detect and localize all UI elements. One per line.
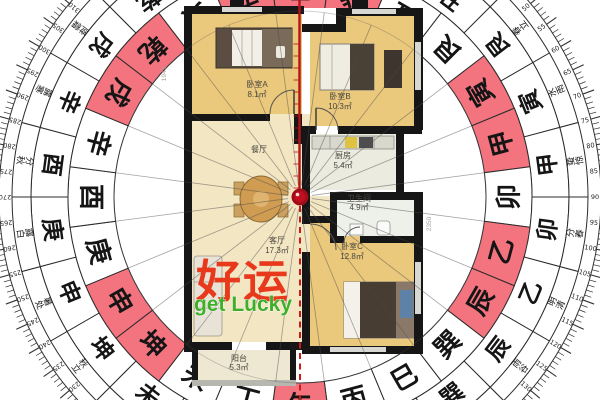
degree-tick	[44, 17, 54, 24]
degree-tick	[594, 260, 600, 261]
degree-tick	[550, 365, 556, 369]
degree-tick	[54, 12, 60, 16]
degree-tick	[12, 87, 19, 90]
degree-label: 60	[550, 44, 561, 55]
degree-label: 305	[51, 21, 66, 35]
dimension-label-right: 2350	[426, 216, 433, 231]
degree-tick	[28, 338, 34, 341]
dimension-label-left: 1943	[161, 66, 168, 81]
degree-tick	[45, 25, 51, 29]
degree-tick	[593, 265, 600, 267]
degree-tick	[555, 34, 561, 38]
degree-label: 65	[562, 67, 573, 78]
degree-tick	[16, 315, 22, 318]
degree-tick	[51, 374, 57, 378]
dining-table	[234, 176, 288, 222]
toilet	[377, 221, 390, 235]
degree-tick	[51, 16, 57, 20]
degree-tick	[585, 295, 592, 297]
degree-tick	[39, 357, 45, 361]
degree-tick	[57, 382, 63, 386]
solar-term-char: 露	[24, 228, 35, 238]
degree-tick	[9, 295, 16, 297]
degree-tick	[1, 270, 8, 272]
exterior-notch	[302, 8, 338, 24]
degree-tick	[36, 352, 42, 356]
center-point-highlight	[296, 193, 300, 197]
degree-tick	[1, 122, 8, 124]
degree-tick	[68, 394, 73, 399]
watermark: 好运 get Lucky	[194, 257, 292, 316]
degree-tick	[26, 57, 32, 60]
degree-tick	[4, 112, 11, 114]
solar-term-char: 蛰	[564, 156, 576, 166]
degree-tick	[19, 72, 25, 75]
middle-mountain-char: 庚	[38, 216, 67, 242]
degree-tick	[596, 143, 600, 145]
degree-tick	[28, 52, 34, 55]
degree-tick	[571, 62, 577, 65]
degree-tick	[588, 107, 595, 109]
degree-tick	[566, 338, 572, 341]
degree-tick	[0, 265, 7, 267]
degree-tick	[591, 275, 600, 278]
degree-tick	[36, 38, 42, 42]
degree-tick	[595, 138, 600, 139]
degree-tick	[57, 7, 63, 11]
degree-tick	[563, 48, 569, 51]
degree-tick	[14, 310, 20, 313]
degree-tick	[0, 116, 9, 119]
middle-mountain-char: 甲	[534, 151, 562, 177]
degree-tick	[589, 280, 596, 282]
degree-tick	[573, 65, 584, 70]
stove-icon	[345, 137, 357, 148]
degree-tick	[6, 300, 17, 304]
degree-tick	[581, 87, 588, 90]
degree-tick	[31, 48, 37, 51]
degree-tick	[44, 370, 54, 377]
degree-tick	[552, 361, 558, 365]
degree-tick	[16, 77, 22, 80]
degree-tick	[531, 0, 540, 4]
luopan-floorplan-image: 子子冬至癸癸小寒丑丑大寒艮艮立春寅寅雨水甲甲惊蛰卯卯春分乙乙清明辰辰谷雨巽巽立夏…	[0, 0, 600, 400]
degree-tick	[573, 324, 584, 329]
degree-tick	[23, 329, 29, 332]
degree-tick	[592, 122, 599, 124]
room-label-dining: 餐厅	[251, 145, 267, 154]
degree-tick	[23, 62, 29, 65]
degree-tick	[566, 52, 572, 55]
degree-tick	[527, 394, 532, 399]
room-area-living: 17.3㎡	[265, 246, 289, 255]
degree-tick	[0, 133, 6, 134]
degree-tick	[575, 319, 581, 322]
degree-label: 70	[572, 91, 583, 101]
degree-tick	[537, 382, 543, 386]
scene: 子子冬至癸癸小寒丑丑大寒艮艮立春寅寅雨水甲甲惊蛰卯卯春分乙乙清明辰辰谷雨巽巽立夏…	[0, 0, 600, 400]
degree-tick	[60, 0, 69, 4]
degree-tick	[589, 112, 596, 114]
degree-tick	[61, 3, 66, 7]
degree-tick	[595, 254, 600, 255]
balcony-rail	[192, 380, 296, 386]
bed-b	[320, 44, 402, 90]
inner-mountain-char: 酉	[77, 184, 106, 210]
degree-tick	[555, 357, 561, 361]
degree-label: 240	[37, 338, 52, 351]
degree-tick	[16, 65, 27, 70]
degree-label: 90	[591, 193, 599, 201]
degree-tick	[563, 343, 569, 346]
degree-tick	[568, 57, 574, 60]
degree-tick	[14, 82, 20, 85]
degree-tick	[561, 41, 571, 47]
degree-tick	[552, 29, 558, 33]
degree-tick	[19, 319, 25, 322]
degree-tick	[61, 386, 66, 390]
degree-tick	[9, 97, 16, 99]
degree-tick	[581, 305, 588, 308]
watermark-en: get Lucky	[194, 293, 292, 316]
degree-tick	[16, 324, 27, 329]
degree-label: 80	[586, 141, 596, 150]
degree-label: 235	[51, 359, 66, 373]
degree-tick	[42, 361, 48, 365]
degree-label: 300	[37, 43, 52, 56]
nightstand	[400, 290, 413, 318]
degree-tick	[575, 72, 581, 75]
center-point	[295, 192, 306, 203]
degree-tick	[7, 102, 14, 104]
room-label-bedroom-a: 卧室A	[246, 79, 268, 89]
degree-tick	[29, 348, 39, 354]
degree-tick	[561, 348, 571, 354]
degree-tick	[547, 370, 557, 377]
degree-label: 270	[0, 193, 11, 201]
degree-tick	[0, 138, 5, 139]
degree-tick	[592, 270, 599, 272]
degree-label: 85	[589, 167, 598, 176]
degree-tick	[540, 378, 546, 382]
degree-label: 125	[534, 359, 549, 373]
degree-tick	[577, 77, 583, 80]
solar-term-char: 分	[24, 156, 35, 166]
degree-tick	[0, 249, 4, 251]
room-area-bathroom: 4.9㎡	[349, 203, 368, 212]
degree-tick	[534, 3, 539, 7]
degree-tick	[593, 128, 600, 130]
degree-tick	[540, 12, 546, 16]
degree-tick	[5, 285, 12, 287]
degree-tick	[45, 365, 51, 369]
degree-tick	[0, 143, 4, 145]
room-label-bathroom: 卫生间	[347, 193, 371, 203]
degree-tick	[544, 16, 550, 20]
degree-tick	[558, 352, 564, 356]
degree-tick	[585, 97, 592, 99]
degree-tick	[54, 378, 60, 382]
degree-tick	[583, 300, 594, 304]
degree-tick	[5, 107, 12, 109]
degree-label: 100	[584, 243, 598, 253]
room-area-bedroom-a: 8.1㎡	[247, 90, 266, 99]
degree-tick	[586, 290, 593, 292]
degree-tick	[0, 275, 9, 278]
degree-tick	[42, 29, 48, 33]
degree-tick	[568, 334, 574, 337]
middle-mountain-char: 卯	[534, 217, 562, 243]
degree-tick	[537, 7, 543, 11]
degree-tick	[579, 82, 585, 85]
degree-label: 280	[3, 141, 17, 151]
degree-label: 120	[548, 338, 563, 351]
degree-tick	[591, 116, 600, 119]
degree-tick	[577, 315, 583, 318]
degree-label: 265	[0, 218, 13, 227]
wardrobe-b	[384, 50, 402, 88]
degree-tick	[0, 128, 7, 130]
degree-tick	[60, 390, 69, 398]
inner-mountain-char: 卯	[495, 184, 524, 210]
degree-tick	[586, 102, 593, 104]
degree-tick	[0, 254, 5, 255]
degree-label: 95	[589, 218, 598, 227]
degree-label: 275	[0, 167, 13, 176]
degree-tick	[588, 285, 595, 287]
degree-tick	[31, 343, 37, 346]
degree-tick	[26, 334, 32, 337]
room-area-bedroom-c: 12.8㎡	[340, 252, 364, 261]
degree-tick	[583, 90, 594, 94]
degree-tick	[0, 260, 6, 261]
degree-tick	[558, 38, 564, 42]
degree-label: 260	[3, 243, 17, 253]
middle-mountain-char: 酉	[38, 151, 66, 177]
room-area-bedroom-b: 10.3㎡	[328, 102, 352, 111]
room-label-kitchen: 厨房	[335, 150, 351, 160]
solar-term-char: 分	[565, 228, 576, 238]
degree-tick	[29, 41, 39, 47]
degree-tick	[4, 280, 11, 282]
degree-tick	[6, 90, 17, 94]
degree-tick	[531, 390, 540, 398]
degree-tick	[12, 305, 19, 308]
degree-tick	[534, 386, 539, 390]
degree-tick	[596, 249, 600, 251]
degree-tick	[579, 310, 585, 313]
degree-tick	[550, 25, 556, 29]
degree-tick	[547, 17, 557, 24]
degree-tick	[594, 133, 600, 134]
degree-tick	[571, 329, 577, 332]
degree-tick	[544, 374, 550, 378]
degree-label: 75	[580, 116, 590, 126]
degree-tick	[7, 290, 14, 292]
degree-tick	[39, 34, 45, 38]
